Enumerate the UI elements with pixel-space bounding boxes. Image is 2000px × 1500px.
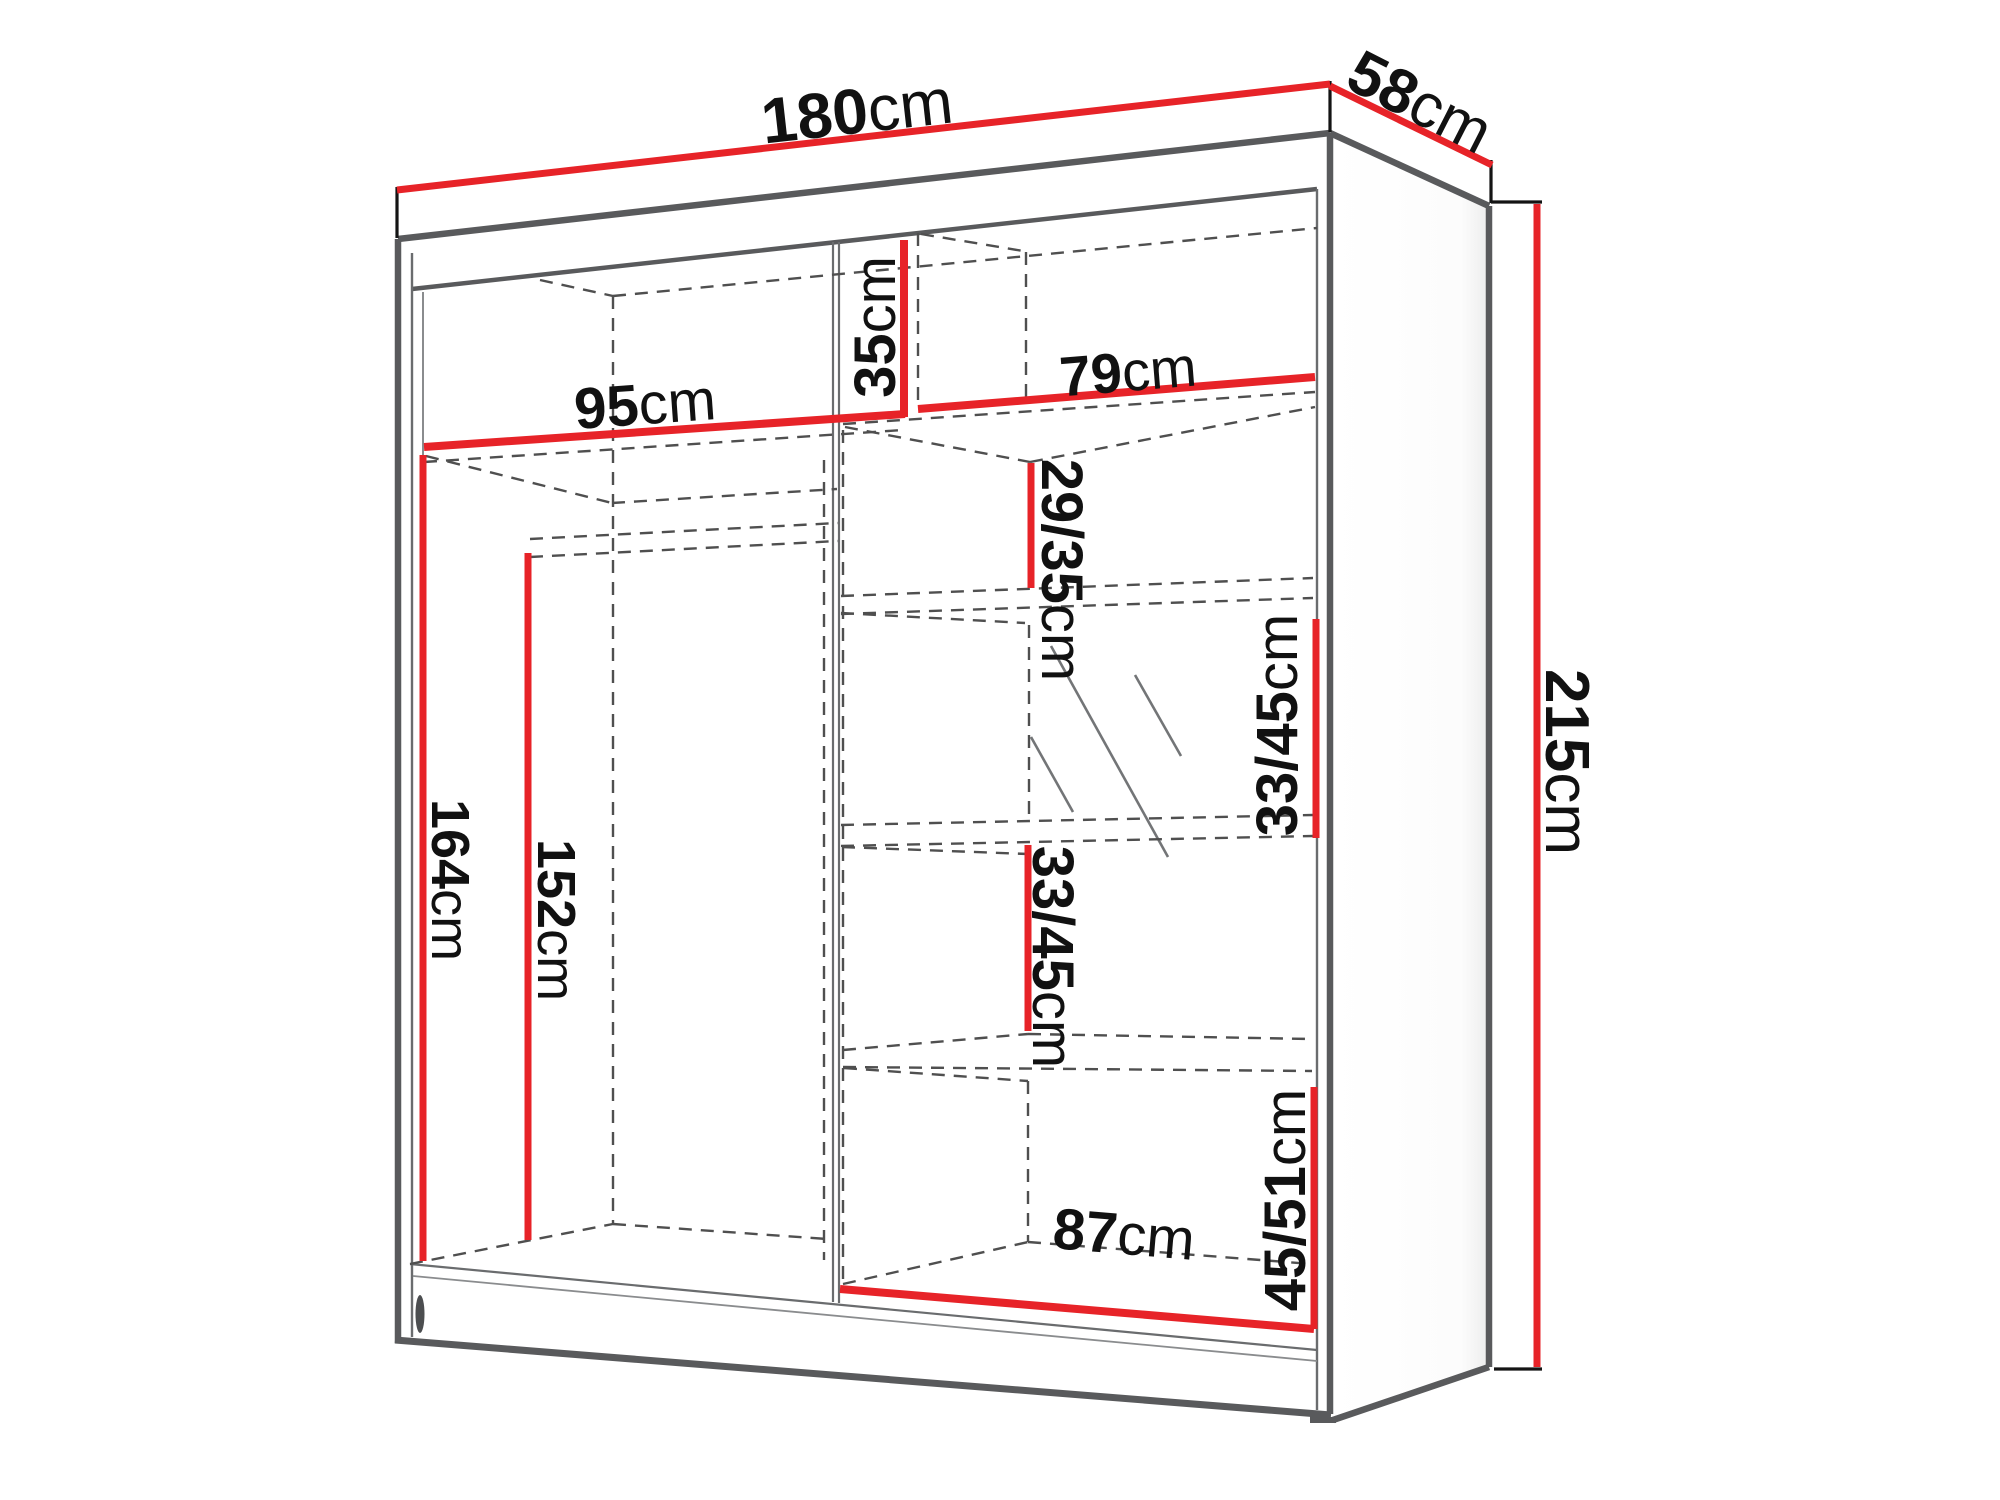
- svg-text:215cm: 215cm: [1533, 669, 1602, 855]
- svg-text:87cm: 87cm: [1051, 1196, 1198, 1273]
- svg-text:35cm: 35cm: [843, 256, 908, 398]
- svg-text:152cm: 152cm: [526, 839, 586, 1001]
- svg-text:79cm: 79cm: [1057, 334, 1199, 408]
- svg-text:164cm: 164cm: [420, 799, 480, 961]
- svg-text:180cm: 180cm: [758, 65, 957, 158]
- svg-text:33/45cm: 33/45cm: [1245, 614, 1310, 836]
- svg-text:95cm: 95cm: [572, 367, 718, 442]
- svg-text:45/51cm: 45/51cm: [1253, 1089, 1318, 1311]
- svg-text:29/35cm: 29/35cm: [1030, 459, 1095, 681]
- svg-text:33/45cm: 33/45cm: [1021, 846, 1086, 1068]
